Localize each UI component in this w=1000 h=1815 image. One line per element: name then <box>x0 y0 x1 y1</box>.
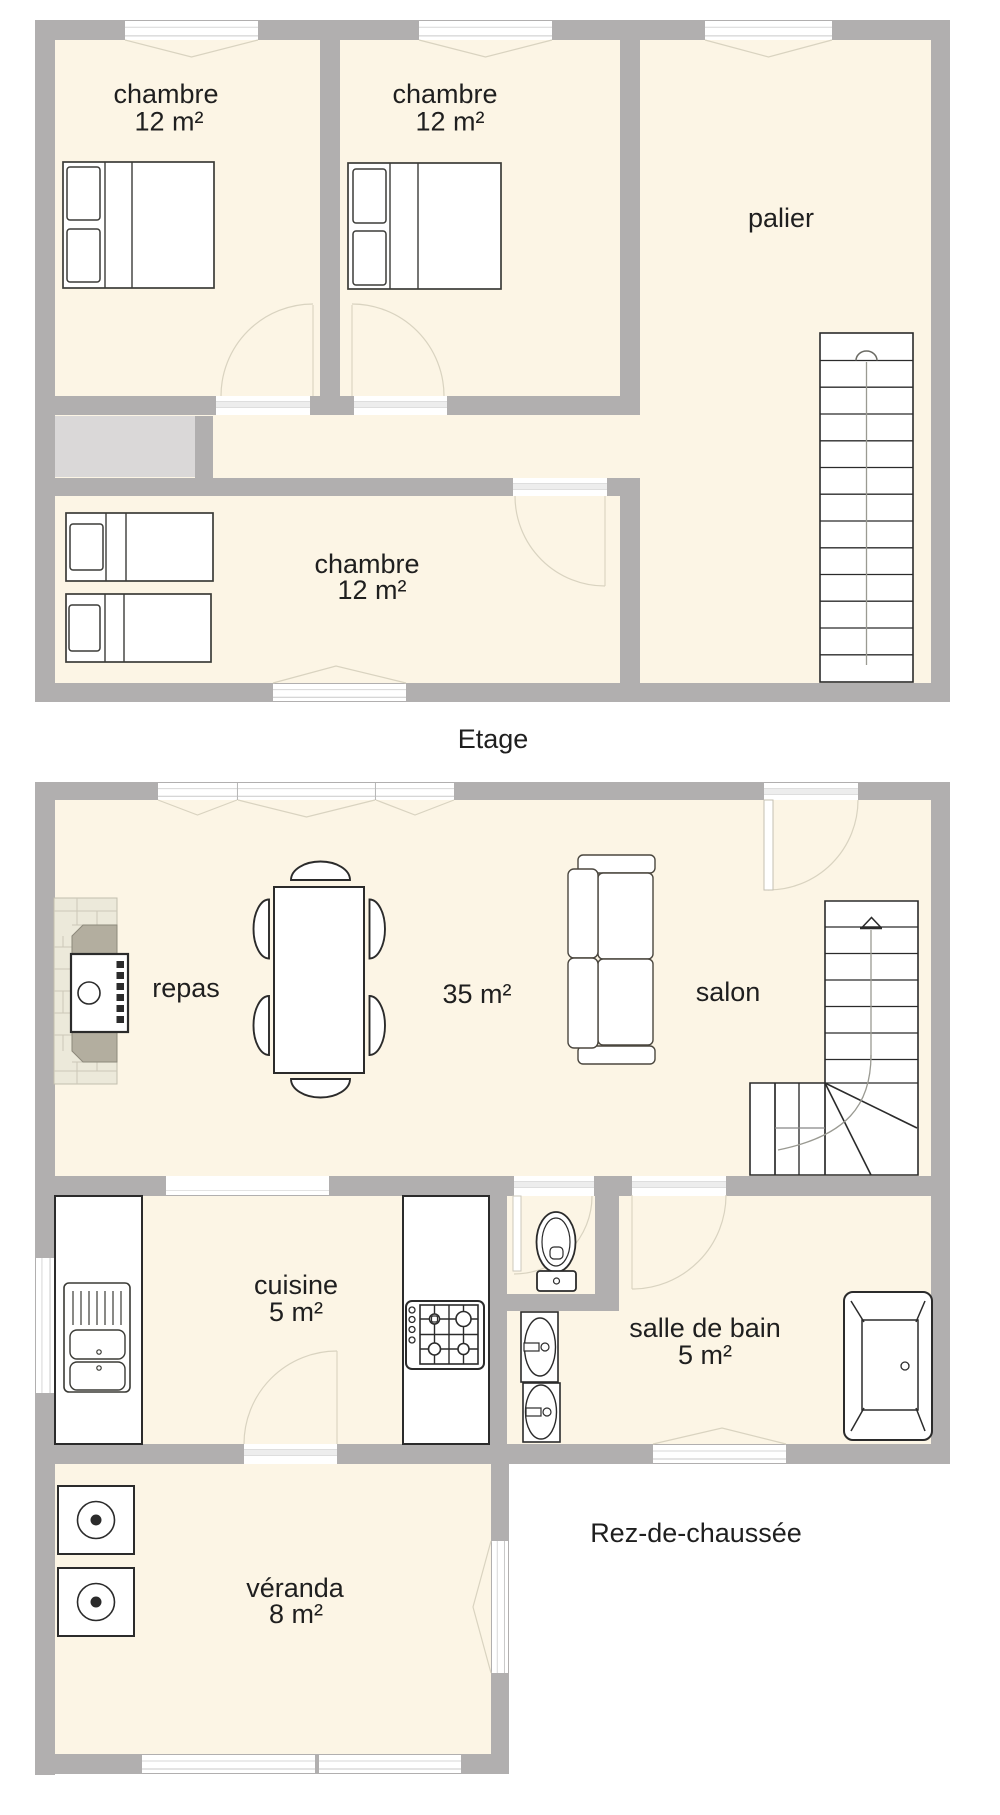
svg-text:12 m²: 12 m² <box>415 107 484 137</box>
svg-text:Rez-de-chaussée: Rez-de-chaussée <box>590 1518 802 1548</box>
svg-text:cuisine: cuisine <box>254 1270 338 1300</box>
svg-text:chambre: chambre <box>113 79 218 109</box>
svg-text:5 m²: 5 m² <box>269 1297 323 1327</box>
svg-text:12 m²: 12 m² <box>134 107 203 137</box>
svg-text:35 m²: 35 m² <box>442 979 511 1009</box>
svg-text:5 m²: 5 m² <box>678 1340 732 1370</box>
svg-text:chambre: chambre <box>392 79 497 109</box>
svg-text:Etage: Etage <box>458 724 529 754</box>
svg-text:repas: repas <box>152 973 220 1003</box>
svg-text:salon: salon <box>696 977 761 1007</box>
svg-text:salle de bain: salle de bain <box>629 1313 781 1343</box>
svg-text:8 m²: 8 m² <box>269 1599 323 1629</box>
svg-text:palier: palier <box>748 203 814 233</box>
svg-text:12 m²: 12 m² <box>337 575 406 605</box>
